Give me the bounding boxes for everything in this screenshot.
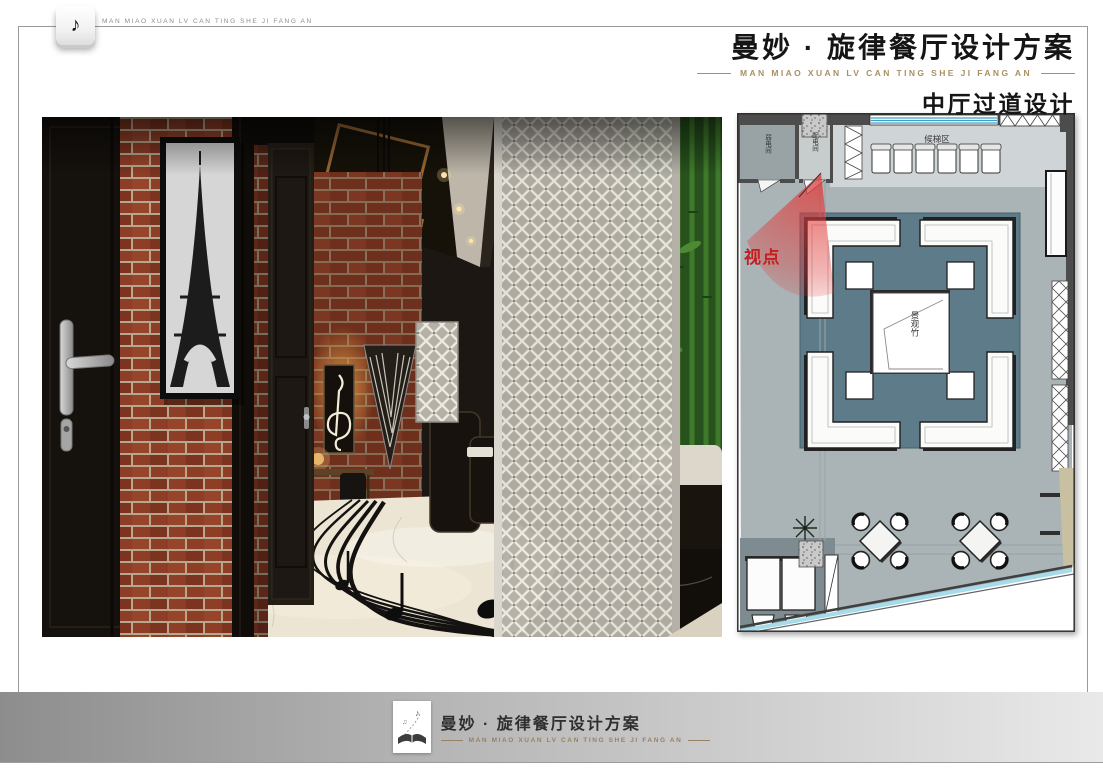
page-title-pinyin: MAN MIAO XUAN LV CAN TING SHE JI FANG AN xyxy=(740,68,1032,78)
bamboo-feature-label: 景观竹 xyxy=(910,311,920,337)
brand-caption: MAN MIAO XUAN LV CAN TING SHE JI FANG AN xyxy=(102,18,317,26)
page-border-right xyxy=(1087,26,1088,692)
page-subtitle: 中厅过道设计 xyxy=(515,85,1075,119)
footer-note-icon-2: ♫ xyxy=(402,719,407,726)
footer-book-logo: ♪ ♫ xyxy=(393,701,431,753)
music-note-icon: ♪ xyxy=(71,14,81,37)
footer-dash-left xyxy=(441,740,463,741)
viewpoint-label: 视点 xyxy=(744,247,781,267)
footer-note-icon-1: ♪ xyxy=(415,708,420,718)
footer-pinyin-row: MAN MIAO XUAN LV CAN TING SHE JI FANG AN xyxy=(441,737,711,744)
page-title: 曼妙 · 旋律餐厅设计方案 xyxy=(515,30,1075,65)
large-lattice-screen xyxy=(494,117,680,637)
waiting-area-label: 候梯区 xyxy=(924,134,950,144)
photo-top-shadow xyxy=(42,117,722,175)
title-dash-right xyxy=(1041,73,1075,74)
footer-band: ♪ ♫ 曼妙 · 旋律餐厅设计方案 MAN MIAO XUAN LV CAN T… xyxy=(0,692,1103,763)
interior-rendering-photo xyxy=(42,117,722,637)
book-icon: ♪ ♫ xyxy=(395,704,429,750)
floor-plan-drawing: 弱电间 配电间 候梯区 xyxy=(737,113,1075,632)
plan-side-panel xyxy=(825,555,838,615)
brand-key-logo: ♪ xyxy=(56,6,95,45)
plan-plant xyxy=(793,516,817,540)
footer-dash-right xyxy=(688,740,710,741)
page-border-left xyxy=(18,26,19,692)
eiffel-tower-picture xyxy=(160,137,244,405)
title-pinyin-row: MAN MIAO XUAN LV CAN TING SHE JI FANG AN xyxy=(515,68,1075,78)
footer-title-pinyin: MAN MIAO XUAN LV CAN TING SHE JI FANG AN xyxy=(469,737,683,744)
header-title-block: 曼妙 · 旋律餐厅设计方案 MAN MIAO XUAN LV CAN TING … xyxy=(515,30,1075,119)
plan-column xyxy=(799,541,823,567)
page-border-top xyxy=(18,26,1087,27)
footer-text-block: 曼妙 · 旋律餐厅设计方案 MAN MIAO XUAN LV CAN TING … xyxy=(441,710,711,744)
plan-shaft-hatch xyxy=(845,126,862,179)
title-dash-left xyxy=(697,73,731,74)
footer-title: 曼妙 · 旋律餐厅设计方案 xyxy=(441,710,641,734)
treble-clef-artwork xyxy=(324,365,354,453)
middle-door xyxy=(238,117,314,637)
small-lattice-screen xyxy=(416,322,458,422)
